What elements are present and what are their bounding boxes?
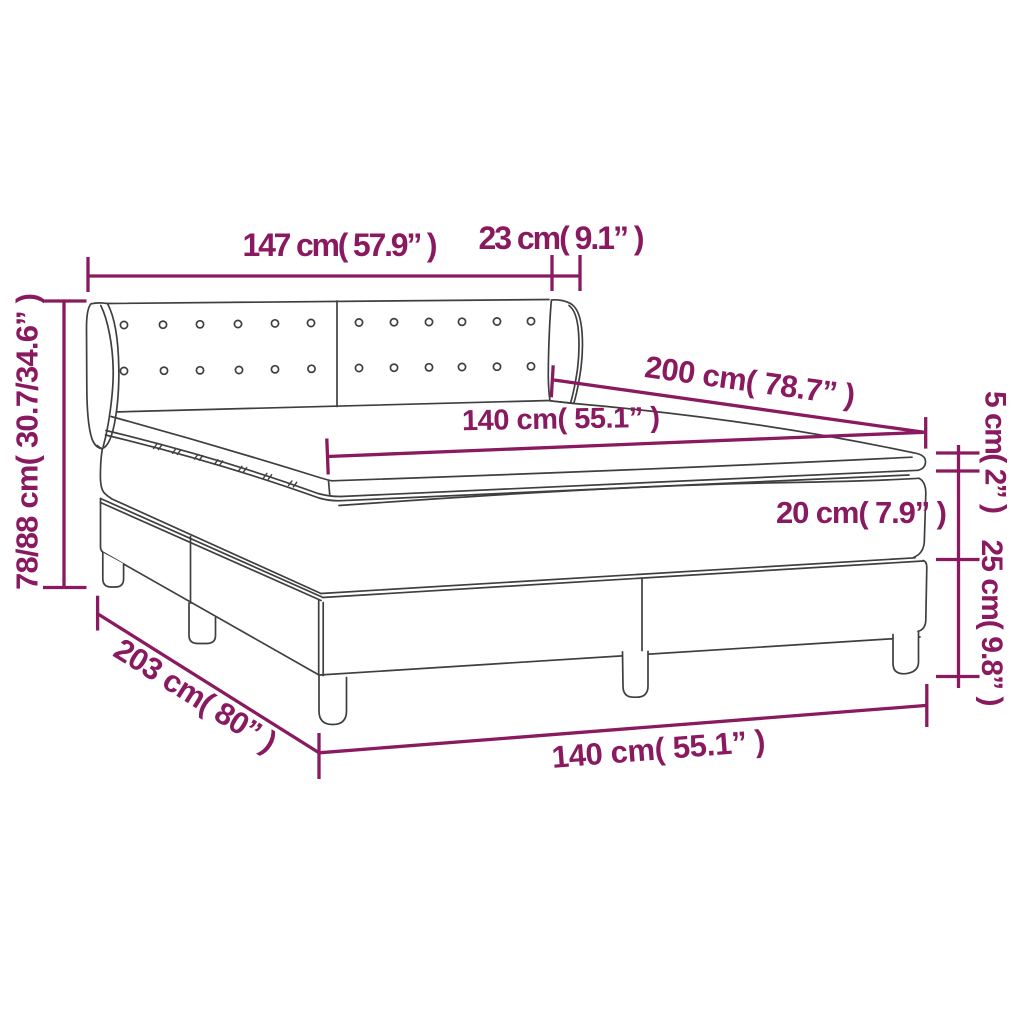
svg-text:147 cm( 57.9” ): 147 cm( 57.9” ) (243, 227, 438, 263)
svg-text:78/88 cm( 30.7/34.6” ): 78/88 cm( 30.7/34.6” ) (10, 293, 45, 590)
svg-text:20 cm( 7.9” ): 20 cm( 7.9” ) (776, 495, 947, 530)
svg-text:5 cm( 2” ): 5 cm( 2” ) (979, 391, 1012, 514)
svg-text:23 cm( 9.1” ): 23 cm( 9.1” ) (479, 220, 645, 256)
svg-text:25 cm( 9.8” ): 25 cm( 9.8” ) (975, 540, 1008, 707)
svg-text:140 cm( 55.1” ): 140 cm( 55.1” ) (462, 402, 661, 437)
